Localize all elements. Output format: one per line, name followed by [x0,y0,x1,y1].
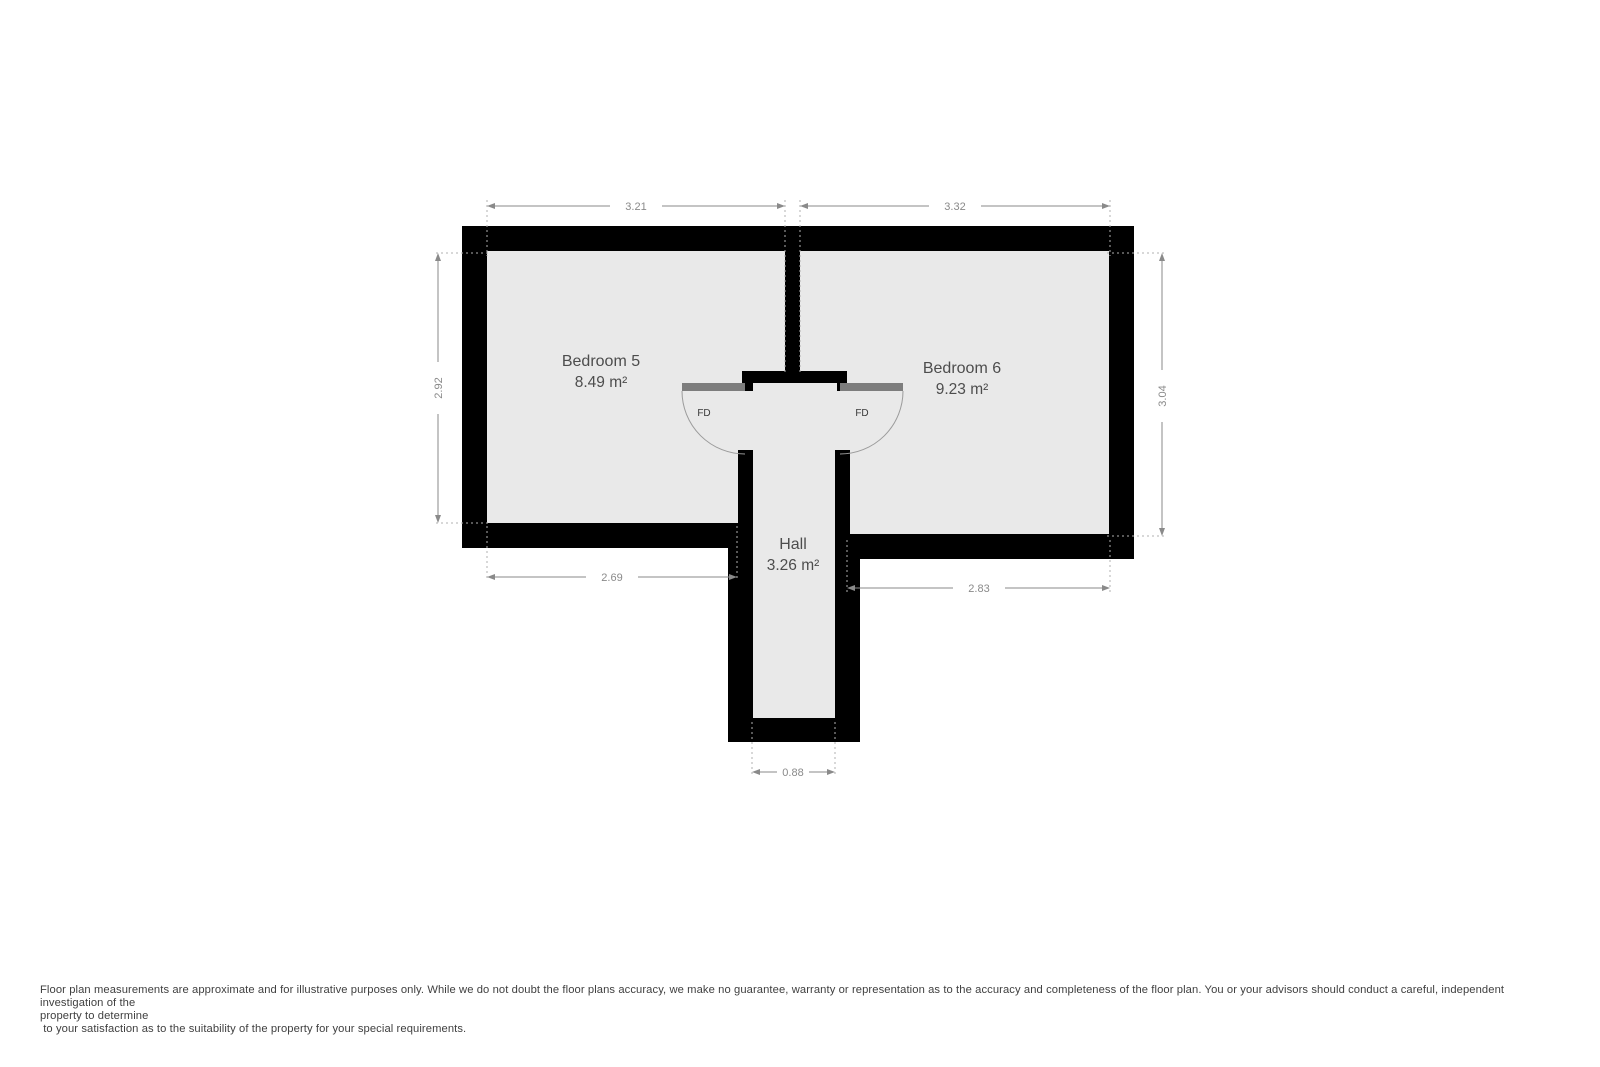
fire-door-label-right: FD [855,408,868,419]
dim-label-hall-bottom: 0.88 [782,767,803,779]
room-name-bedroom5: Bedroom 5 [562,353,640,370]
disclaimer: Floor plan measurements are approximate … [40,984,1570,1036]
arrow-icon [487,574,495,580]
wall-right [1109,226,1134,559]
arrow-icon [1102,203,1110,209]
room-name-bedroom6: Bedroom 6 [923,360,1001,377]
wall-top [462,226,1134,251]
wall-bedroom5-bottom [462,523,753,548]
room-name-hall: Hall [779,536,807,553]
wall-hall-right-upper [835,450,850,559]
disclaimer-line-1: Floor plan measurements are approximate … [40,984,1570,1010]
arrow-icon [827,769,835,775]
arrow-icon [1159,253,1165,261]
dim-label-bedroom6-right: 3.04 [1157,385,1169,406]
arrow-icon [752,769,760,775]
dim-label-bedroom6-bottom: 2.83 [968,583,989,595]
door-leaf-right [840,383,903,391]
arrow-icon [487,203,495,209]
arrow-icon [435,515,441,523]
page: 3.21 3.32 2.92 3.04 2.69 2.83 0.88 Bedro… [0,0,1600,1067]
wall-hall-left-upper [738,450,753,548]
arrow-icon [1159,528,1165,536]
arrow-icon [800,203,808,209]
room-area-bedroom6: 9.23 m² [936,381,989,398]
wall-bedroom6-bottom [835,534,1134,559]
wall-center-divider [785,251,800,372]
floor-plan: 3.21 3.32 2.92 3.04 2.69 2.83 0.88 Bedro… [0,0,1600,1067]
dim-label-bedroom6-top: 3.32 [944,201,965,213]
wall-hall-bottom [728,718,860,742]
arrow-icon [435,253,441,261]
hall-vestibule-floor [738,383,850,450]
room-area-bedroom5: 8.49 m² [575,374,628,391]
disclaimer-line-2: property to determine [40,1010,1570,1023]
dim-label-bedroom5-left: 2.92 [433,377,445,398]
hall-corridor-floor [753,450,835,718]
dim-label-bedroom5-bottom: 2.69 [601,572,622,584]
disclaimer-line-3: to your satisfaction as to the suitabili… [40,1023,1570,1036]
wall-door-jamb-left [745,383,753,391]
dim-label-bedroom5-top: 3.21 [625,201,646,213]
room-area-hall: 3.26 m² [767,557,820,574]
arrow-icon [777,203,785,209]
door-leaf-left [682,383,745,391]
fire-door-label-left: FD [697,408,710,419]
arrow-icon [1102,585,1110,591]
wall-left [462,226,487,548]
wall-door-header [742,371,847,383]
